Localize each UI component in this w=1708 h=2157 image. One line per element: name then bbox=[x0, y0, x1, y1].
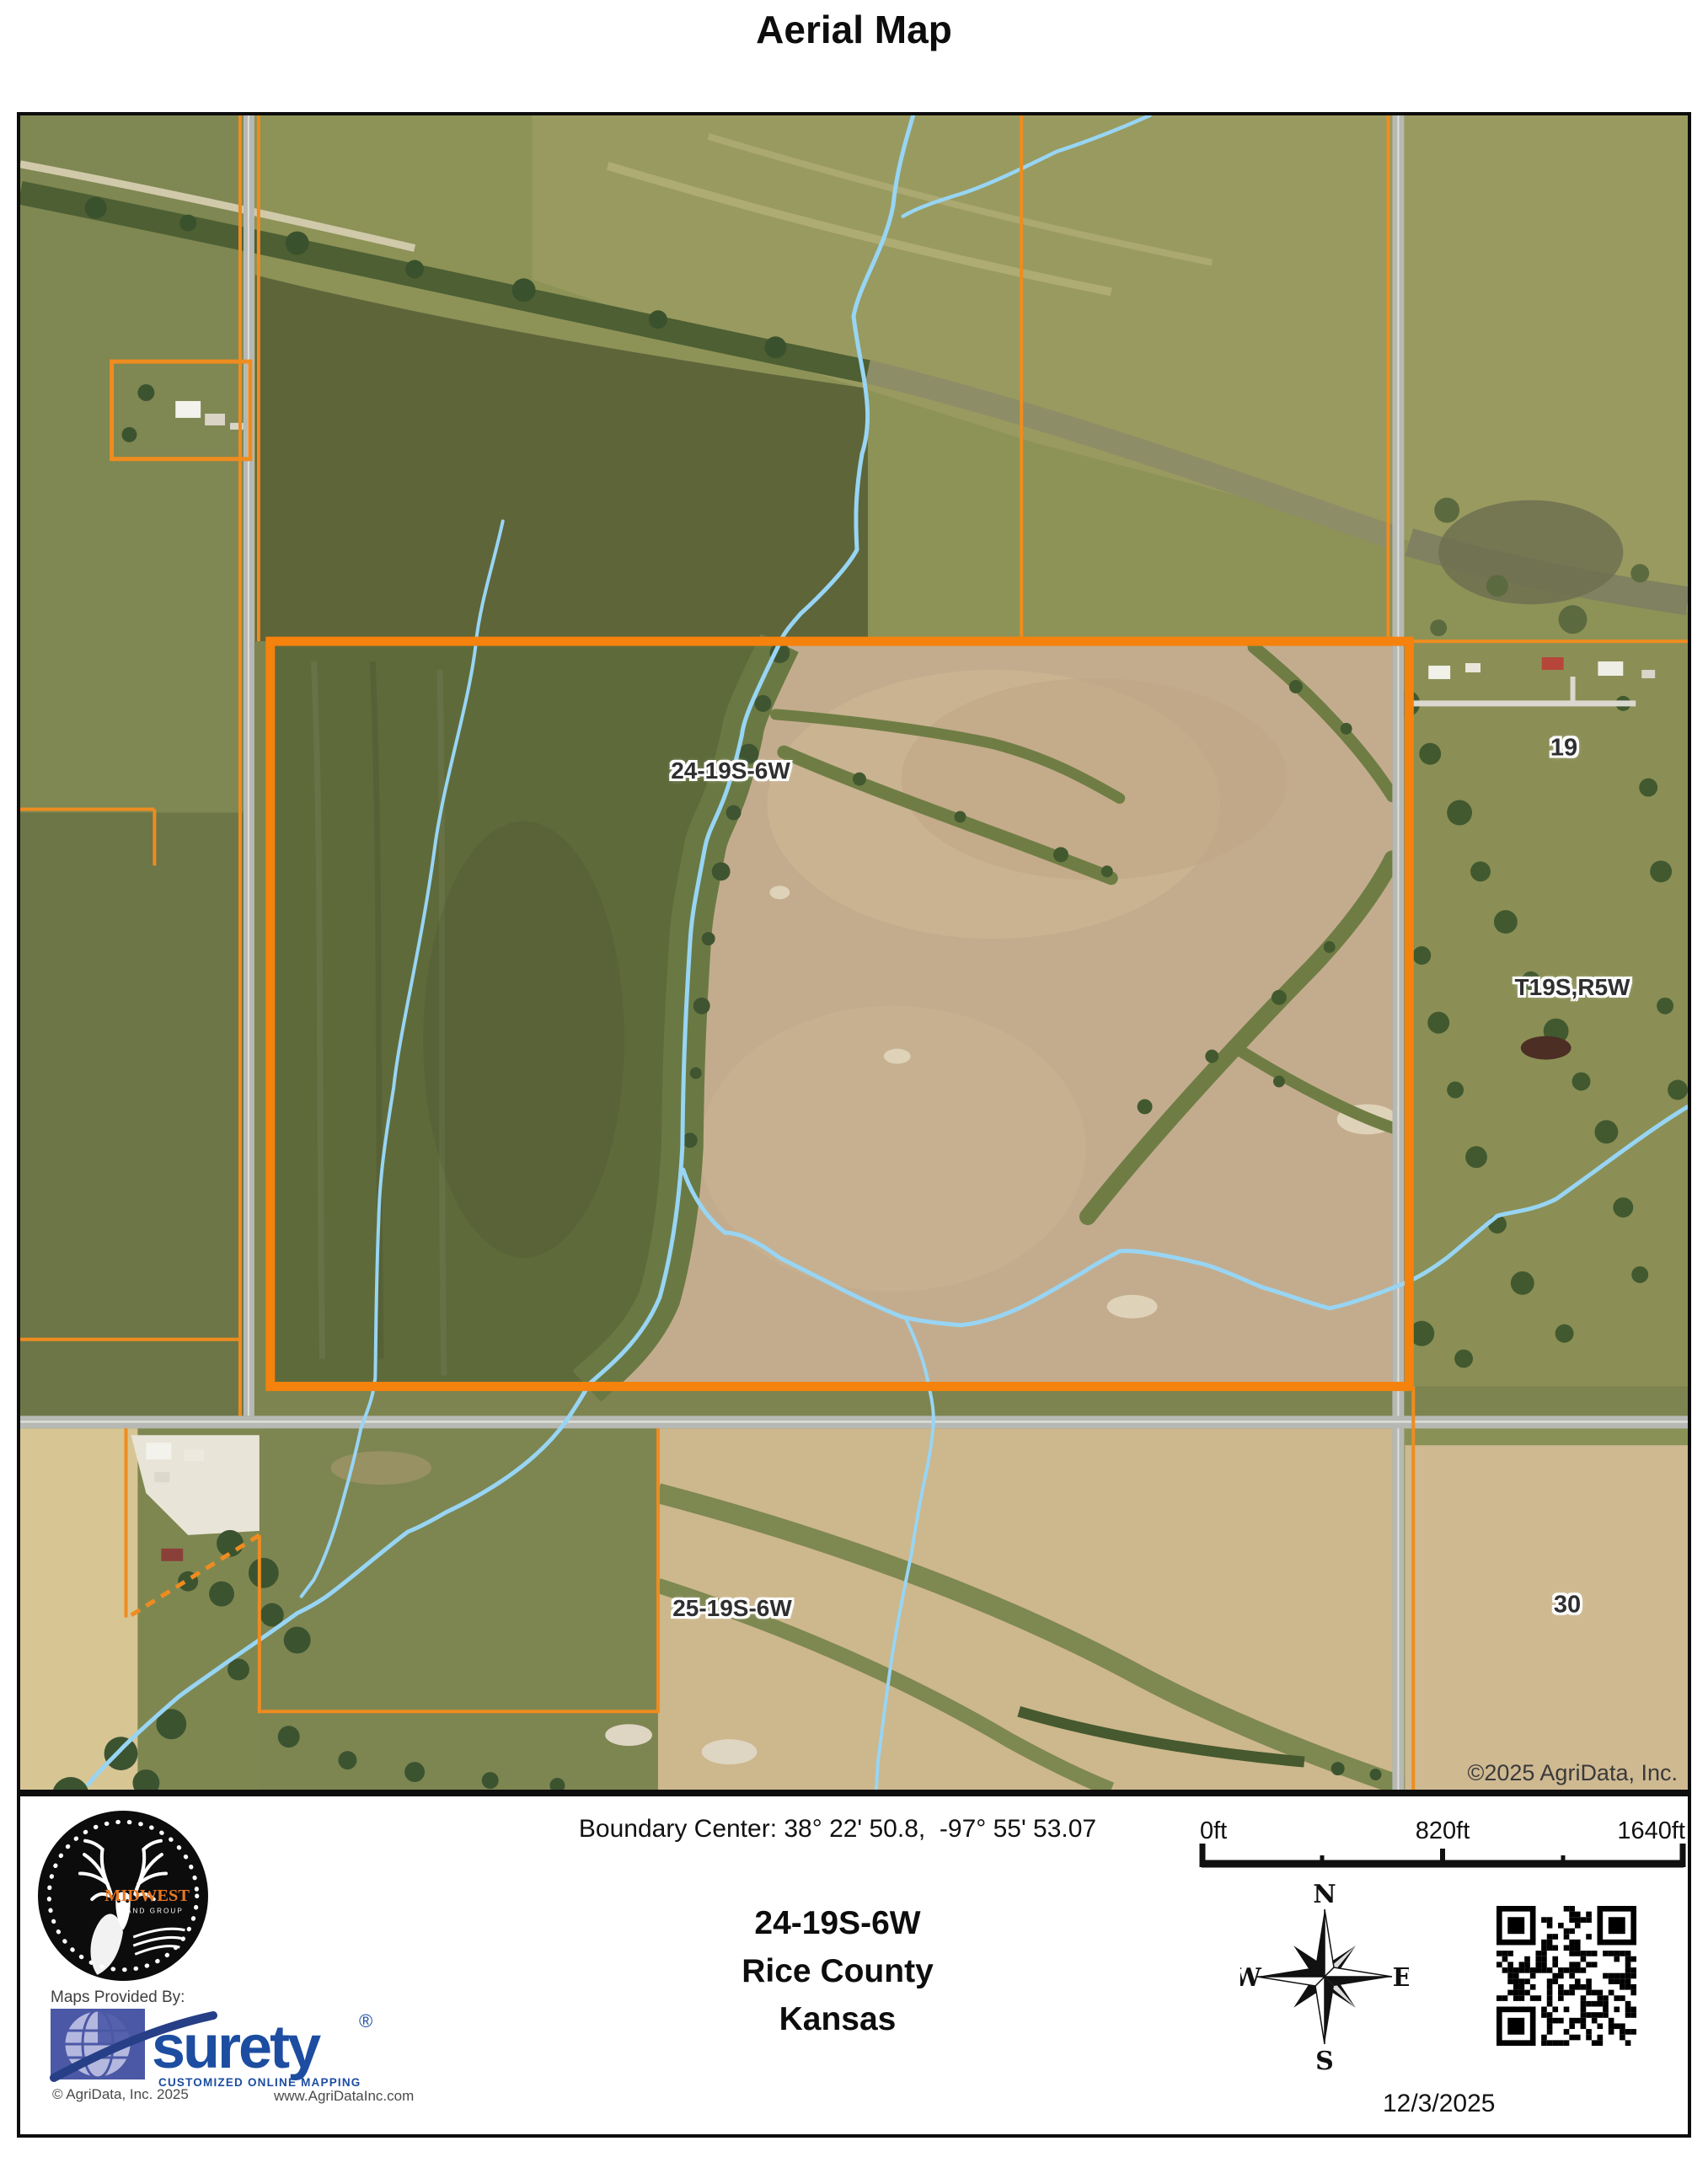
location-section: 24-19S-6W bbox=[20, 1899, 1655, 1947]
map-label-section-30: 30 bbox=[1554, 1592, 1581, 1619]
compass-west-label: W bbox=[1240, 1963, 1262, 1993]
scale-mid-label: 820ft bbox=[1416, 1817, 1470, 1844]
scale-bar: 0ft 820ft 1640ft bbox=[1198, 1815, 1687, 1871]
compass-cardinal-points bbox=[1257, 1909, 1392, 2044]
compass-east-label: E bbox=[1393, 1963, 1409, 1993]
agridata-website: www.AgriDataInc.com bbox=[274, 2088, 414, 2105]
footer-panel: MIDWEST LAND GROUP Maps Provided By: sur… bbox=[17, 1793, 1691, 2138]
page-title: Aerial Map bbox=[0, 7, 1708, 52]
compass-south-label: S bbox=[1315, 2047, 1334, 2073]
aerial-map-page: Aerial Map bbox=[0, 0, 1708, 2157]
qr-code bbox=[1497, 1906, 1636, 2046]
location-block: 24-19S-6W Rice County Kansas bbox=[20, 1899, 1655, 2043]
agridata-copyright: © AgriData, Inc. 2025 bbox=[52, 2086, 189, 2103]
compass-rose: N E S W bbox=[1240, 1881, 1409, 2073]
location-state: Kansas bbox=[20, 1995, 1655, 2043]
map-date: 12/3/2025 bbox=[1383, 2090, 1495, 2118]
map-label-section-24: 24-19S-6W bbox=[671, 757, 790, 784]
imagery-credit: ©2025 AgriData, Inc. bbox=[1467, 1760, 1678, 1786]
aerial-imagery bbox=[20, 115, 1688, 1790]
bottom-fields bbox=[20, 1428, 1688, 1790]
section-19-area bbox=[1393, 641, 1688, 1386]
scale-start-label: 0ft bbox=[1200, 1817, 1227, 1844]
map-label-section-25: 25-19S-6W bbox=[672, 1595, 792, 1622]
surety-tagline: CUSTOMIZED ONLINE MAPPING bbox=[158, 2076, 361, 2089]
location-county: Rice County bbox=[20, 1947, 1655, 1995]
scale-end-label: 1640ft bbox=[1617, 1817, 1685, 1844]
parcel-fields bbox=[270, 641, 1410, 1386]
pond bbox=[1521, 1036, 1571, 1060]
compass-north-label: N bbox=[1313, 1881, 1336, 1909]
aerial-map: 24-19S-6W 25-19S-6W 19 T19S,R5W 30 ©2025… bbox=[17, 112, 1691, 1793]
map-label-township-range: T19S,R5W bbox=[1515, 974, 1630, 1001]
map-label-section-19: 19 bbox=[1550, 735, 1577, 763]
scale-bar-ticks bbox=[1202, 1844, 1684, 1867]
